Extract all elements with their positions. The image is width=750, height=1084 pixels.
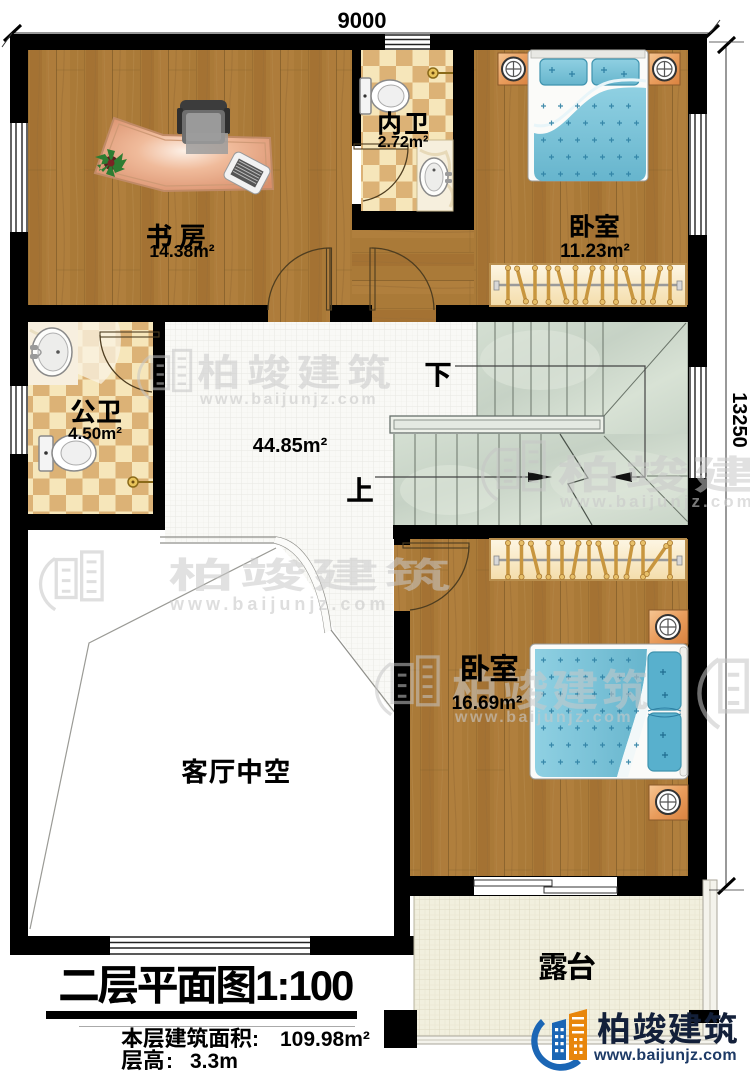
svg-text::: :: [252, 1028, 259, 1051]
svg-text:3.3m: 3.3m: [190, 1050, 238, 1073]
svg-text:1:100: 1:100: [255, 962, 353, 1009]
svg-text:109.98m²: 109.98m²: [280, 1028, 370, 1051]
svg-text:13250: 13250: [728, 392, 750, 448]
svg-text:www.baijunjz.com: www.baijunjz.com: [169, 594, 389, 614]
svg-text:2.72m²: 2.72m²: [378, 134, 429, 151]
svg-text:9000: 9000: [338, 8, 387, 33]
svg-text:44.85m²: 44.85m²: [253, 435, 328, 457]
svg-text:4.50m²: 4.50m²: [68, 424, 122, 443]
svg-text:www.baijunjz.com: www.baijunjz.com: [593, 1047, 737, 1064]
svg-text:11.23m²: 11.23m²: [560, 241, 630, 262]
svg-text:www.baijunjz.com: www.baijunjz.com: [559, 492, 750, 511]
svg-text:www.baijunjz.com: www.baijunjz.com: [199, 391, 378, 408]
svg-text:16.69m²: 16.69m²: [452, 693, 523, 714]
svg-text:14.38m²: 14.38m²: [149, 241, 214, 261]
svg-text::: :: [166, 1050, 173, 1073]
